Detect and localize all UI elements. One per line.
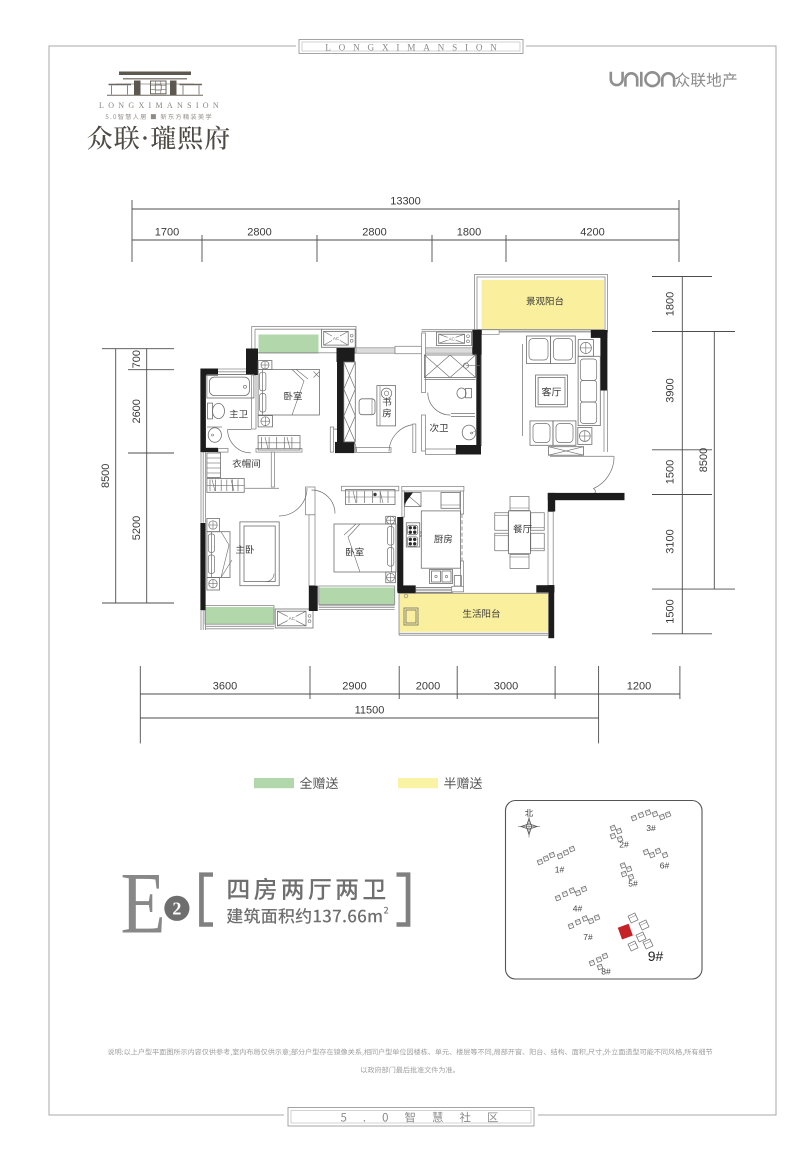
svg-text:3100: 3100 [665, 529, 677, 553]
svg-text:2: 2 [172, 899, 181, 919]
svg-text:9#: 9# [648, 948, 664, 964]
svg-text:8500: 8500 [100, 464, 112, 488]
svg-text:4#: 4# [573, 904, 583, 914]
svg-text:3600: 3600 [213, 681, 237, 693]
svg-text:1700: 1700 [155, 227, 179, 239]
svg-text:1#: 1# [555, 865, 565, 875]
svg-text:7#: 7# [583, 932, 593, 942]
svg-text:1500: 1500 [665, 599, 677, 623]
svg-text:4200: 4200 [580, 227, 604, 239]
svg-text:AC: AC [333, 336, 340, 341]
svg-text:3#: 3# [646, 823, 656, 833]
svg-text:2800: 2800 [362, 227, 386, 239]
svg-text:1200: 1200 [627, 681, 651, 693]
svg-text:AC: AC [289, 616, 296, 621]
svg-text:3000: 3000 [494, 681, 518, 693]
svg-text:2800: 2800 [247, 227, 271, 239]
svg-text:AC: AC [448, 336, 455, 341]
svg-text:5#: 5# [628, 879, 638, 889]
svg-text:5200: 5200 [131, 516, 143, 540]
svg-text:3900: 3900 [665, 378, 677, 402]
svg-text:1800: 1800 [457, 227, 481, 239]
svg-text:8#: 8# [601, 967, 611, 977]
svg-text:E: E [121, 855, 166, 952]
svg-text:2600: 2600 [131, 399, 143, 423]
svg-text:LONGXIMANSION: LONGXIMANSION [99, 101, 223, 110]
svg-text:8500: 8500 [698, 448, 710, 472]
svg-text:11500: 11500 [355, 705, 385, 717]
svg-text:1800: 1800 [665, 292, 677, 316]
svg-text:2900: 2900 [342, 681, 366, 693]
svg-text:700: 700 [131, 350, 143, 368]
svg-text:1500: 1500 [665, 460, 677, 484]
svg-text:2000: 2000 [416, 681, 440, 693]
svg-text:6#: 6# [660, 861, 670, 871]
svg-text:13300: 13300 [390, 196, 421, 208]
svg-text:2#: 2# [619, 840, 629, 850]
svg-text:LONGXIMANSION: LONGXIMANSION [325, 42, 505, 52]
